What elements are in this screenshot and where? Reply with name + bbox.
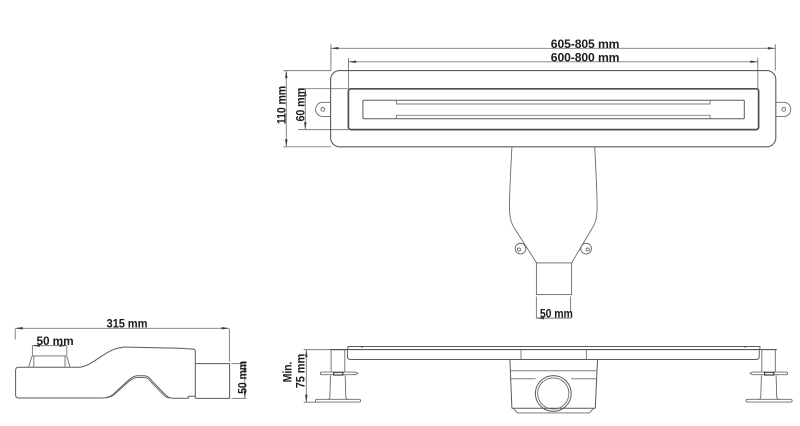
svg-text:315 mm: 315 mm	[107, 317, 148, 331]
svg-text:Min.: Min.	[280, 362, 294, 383]
svg-text:60 mm: 60 mm	[294, 88, 308, 122]
svg-text:75 mm: 75 mm	[294, 354, 308, 389]
svg-text:50 mm: 50 mm	[540, 306, 573, 320]
svg-text:605-805 mm: 605-805 mm	[551, 37, 620, 51]
svg-text:50 mm: 50 mm	[235, 361, 249, 394]
svg-text:50 mm: 50 mm	[37, 334, 74, 348]
svg-text:110 mm: 110 mm	[274, 86, 288, 124]
svg-text:600-800 mm: 600-800 mm	[551, 51, 620, 65]
